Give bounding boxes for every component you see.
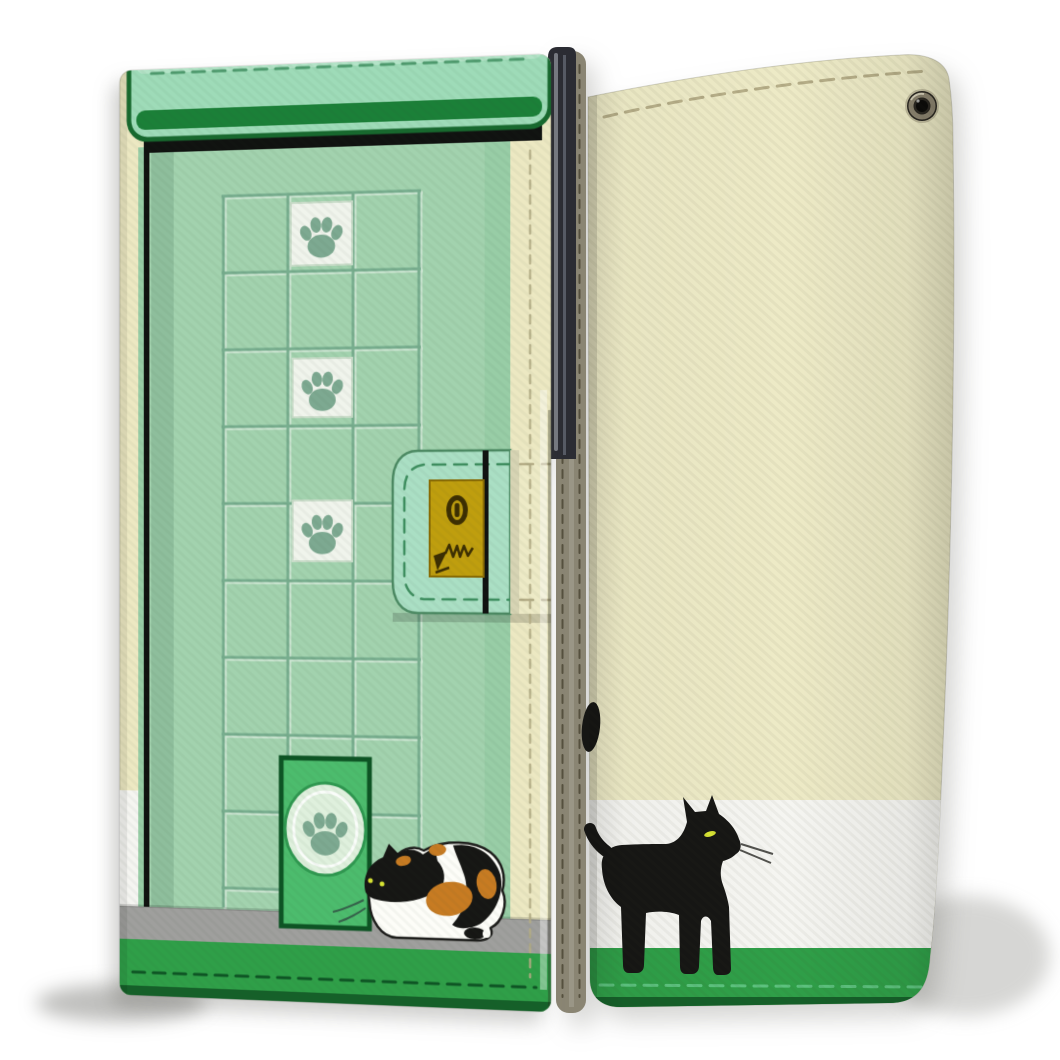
- front-case-graphic: [114, 28, 606, 1023]
- front-case: [114, 28, 606, 1023]
- leather-texture: [120, 54, 551, 1012]
- back-case-graphic: [548, 45, 978, 1020]
- product-photo-stage: [0, 0, 1060, 1060]
- back-case: [548, 45, 978, 1020]
- leather-texture: [548, 45, 978, 1020]
